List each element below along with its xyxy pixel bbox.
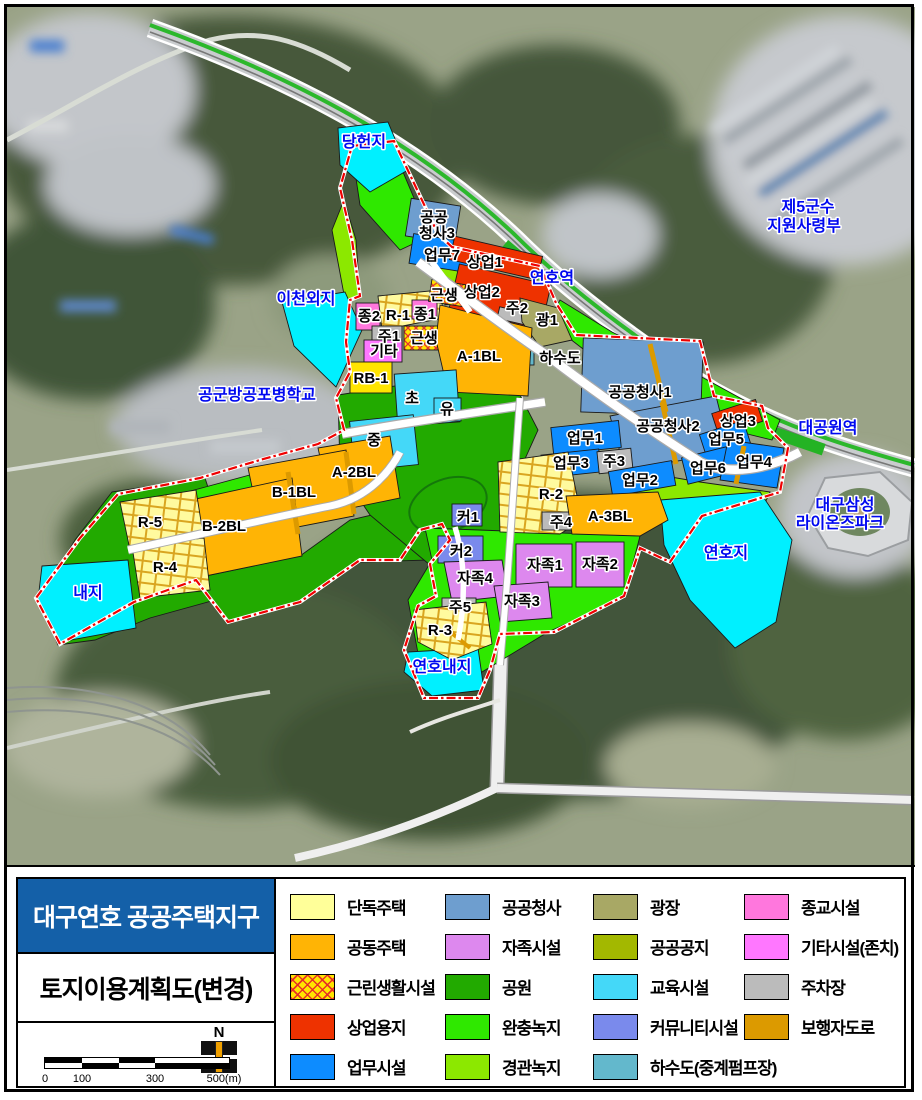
- legend-label: 완충녹지: [502, 1014, 561, 1039]
- title-box: 대구연호 공공주택지구 토지이용계획도(변경) N 0 100 300 500(…: [16, 877, 276, 1088]
- swatch-education: [593, 974, 638, 1000]
- legend-item-religious: 종교시설: [744, 893, 898, 920]
- swatch-detached: [290, 894, 335, 920]
- swatch-selfsufficiency: [445, 934, 490, 960]
- legend-item-other-retained: 기타시설(존치): [744, 933, 898, 960]
- scale-box: N 0 100 300 500(m): [18, 1023, 274, 1086]
- legend-label: 보행자도로: [801, 1014, 874, 1039]
- scale-tick-0: 0: [42, 1073, 48, 1085]
- swatch-buffer-green: [445, 1014, 490, 1040]
- legend-col-1: 단독주택 공동주택 근린생활시설 상업용지 업무시설: [290, 893, 435, 1080]
- swatch-landscape-green: [445, 1054, 490, 1080]
- district-title: 대구연호 공공주택지구: [18, 879, 274, 954]
- legend-label: 공공청사: [502, 894, 561, 919]
- swatch-other-retained: [744, 934, 789, 960]
- legend-item-business: 업무시설: [290, 1053, 435, 1080]
- swatch-business: [290, 1054, 335, 1080]
- swatch-park: [445, 974, 490, 1000]
- legend-item-neighborhood: 근린생활시설: [290, 973, 435, 1000]
- legend-item-selfsufficiency: 자족시설: [445, 933, 561, 960]
- legend-item-apartment: 공동주택: [290, 933, 435, 960]
- legend-col-4: 종교시설 기타시설(존치) 주차장 보행자도로: [744, 893, 898, 1040]
- legend-label: 기타시설(존치): [801, 934, 898, 959]
- legend-item-buffer-green: 완충녹지: [445, 1013, 561, 1040]
- legend-label: 공동주택: [347, 934, 406, 959]
- legend-label: 공공공지: [650, 934, 709, 959]
- swatch-parking: [744, 974, 789, 1000]
- swatch-community: [593, 1014, 638, 1040]
- scale-tick-300: 300: [146, 1073, 164, 1085]
- swatch-sewage: [593, 1054, 638, 1080]
- swatch-commercial: [290, 1014, 335, 1040]
- swatch-apartment: [290, 934, 335, 960]
- swatch-pedestrian: [744, 1014, 789, 1040]
- legend-label: 단독주택: [347, 894, 406, 919]
- swatch-public-space: [593, 934, 638, 960]
- legend: 단독주택 공동주택 근린생활시설 상업용지 업무시설 공공청사 자족시설 공원 …: [274, 877, 906, 1088]
- swatch-religious: [744, 894, 789, 920]
- legend-item-detached: 단독주택: [290, 893, 435, 920]
- scale-bar: [44, 1057, 230, 1069]
- legend-label: 자족시설: [502, 934, 561, 959]
- legend-label: 경관녹지: [502, 1054, 561, 1079]
- legend-label: 광장: [650, 894, 679, 919]
- swatch-public-office: [445, 894, 490, 920]
- legend-label: 업무시설: [347, 1054, 406, 1079]
- legend-label: 근린생활시설: [347, 974, 435, 999]
- legend-item-parking: 주차장: [744, 973, 898, 1000]
- legend-item-public-office: 공공청사: [445, 893, 561, 920]
- north-label: N: [196, 1025, 242, 1040]
- scale-ticks: 0 100 300 500(m): [18, 1073, 274, 1087]
- legend-item-landscape-green: 경관녹지: [445, 1053, 561, 1080]
- legend-label: 종교시설: [801, 894, 860, 919]
- legend-label: 하수도(중계펌프장): [650, 1054, 776, 1079]
- legend-item-sewage: 하수도(중계펌프장): [593, 1053, 776, 1080]
- legend-col-2: 공공청사 자족시설 공원 완충녹지 경관녹지: [445, 893, 561, 1080]
- legend-label: 교육시설: [650, 974, 709, 999]
- plan-subtitle: 토지이용계획도(변경): [18, 954, 274, 1023]
- legend-label: 공원: [502, 974, 531, 999]
- swatch-neighborhood: [290, 974, 335, 1000]
- legend-item-commercial: 상업용지: [290, 1013, 435, 1040]
- legend-item-park: 공원: [445, 973, 561, 1000]
- legend-item-pedestrian: 보행자도로: [744, 1013, 898, 1040]
- scale-tick-100: 100: [73, 1073, 91, 1085]
- scale-tick-500: 500(m): [207, 1073, 242, 1085]
- land-use-plan-page: 당헌지 제5군수 지원사령부 이천외지 연호역 대공원역 공군방공포병학교 대구…: [0, 0, 922, 1100]
- swatch-plaza: [593, 894, 638, 920]
- legend-label: 상업용지: [347, 1014, 406, 1039]
- legend-label: 커뮤니티시설: [650, 1014, 738, 1039]
- legend-label: 주차장: [801, 974, 845, 999]
